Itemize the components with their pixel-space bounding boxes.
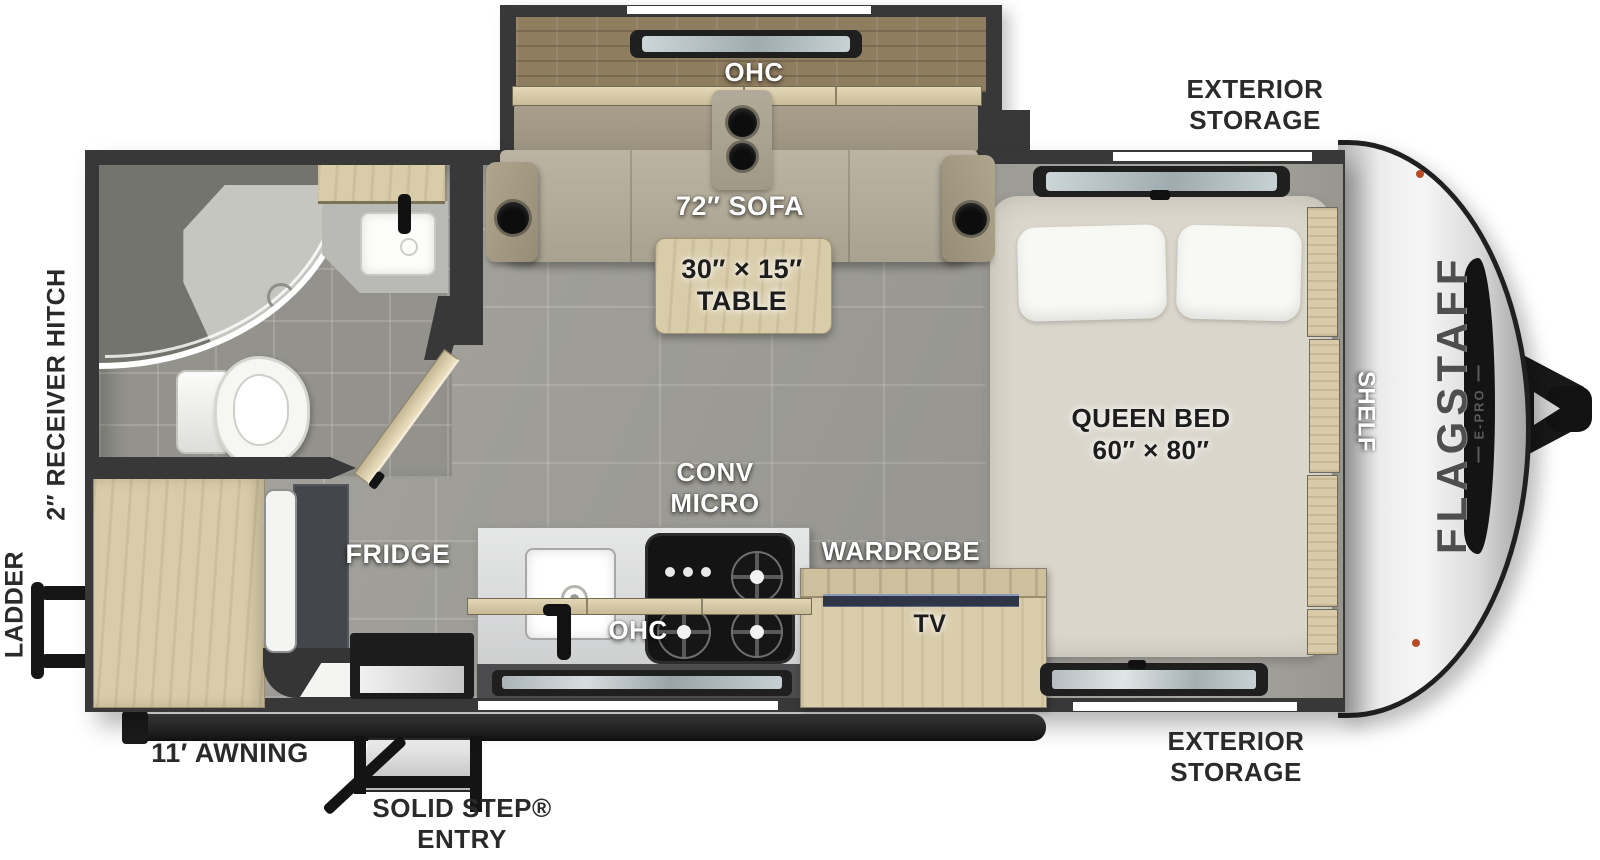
marker-light-bottom-icon [1412,639,1420,647]
cupholder-icon [728,108,757,137]
sofa-center-console [712,90,772,190]
cupholder-icon [729,143,756,170]
label-slide-ohc: OHC [704,57,804,88]
label-exterior-storage-bottom: EXTERIOR STORAGE [1136,726,1336,788]
window-latch-icon [1150,190,1170,200]
label-ladder: LADDER [0,545,31,665]
label-queen-bed: QUEEN BED 60″ × 80″ [1051,402,1251,466]
bedroom-window-doorside [1040,663,1268,696]
brand-trim: E-PRO [1472,386,1487,470]
label-fridge: FRIDGE [298,539,498,570]
kitchen-window [492,670,792,696]
pillow [1176,224,1302,321]
window-latch-icon [1128,660,1146,669]
brand-model: FLAGSTAFF [1428,274,1476,554]
entry-door-marker [478,701,778,710]
cooktop-knob-icon [683,567,693,577]
slide-storage-door-marker [627,6,871,14]
entry-step-well [350,633,474,699]
label-tv: TV [880,608,980,640]
label-wardrobe: WARDROBE [801,536,1001,567]
awning-rail [122,714,1046,741]
label-exterior-storage-top: EXTERIOR STORAGE [1155,74,1355,136]
pillow [1017,224,1167,322]
kitchen-overhead-cabinet [467,598,812,615]
shower-drain-icon [267,283,295,311]
bathroom-wall-bottom [85,457,330,479]
label-receiver-hitch: 2″ RECEIVER HITCH [42,245,73,545]
storage-door-marker-top [1113,152,1312,161]
cupholder-icon [497,202,529,234]
bed-shelf [1307,609,1338,655]
label-entry: SOLID STEP® ENTRY [342,793,582,855]
bed-shelf [1307,475,1338,607]
toilet-bowl [214,356,310,468]
cupholder-icon [955,203,987,235]
label-table: 30″ × 15″ TABLE [642,253,842,317]
floorplan-canvas: FLAGSTAFF E-PRO [0,0,1600,860]
bed-shelf [1307,207,1338,337]
kitchen-faucet-icon [543,604,571,616]
fridge-door [264,489,297,653]
bathroom-drain-icon [400,238,418,256]
cooktop-knob-icon [701,567,711,577]
label-conv-micro: CONV MICRO [615,457,815,519]
burner-icon [731,551,783,603]
brand-rule-left [1477,447,1479,463]
label-awning: 11′ AWNING [130,738,330,769]
label-kitchen-ohc: OHC [588,615,688,646]
slide-window [630,30,862,58]
label-shelf: SHELF [1351,342,1382,482]
marker-light-top-icon [1416,170,1424,178]
bed-shelf [1309,339,1340,473]
cooktop-knob-icon [665,567,675,577]
label-sofa: 72″ SOFA [640,191,840,222]
brand-rule-right [1477,365,1479,381]
storage-bunk [93,477,265,708]
tv-screen [823,594,1019,607]
bathroom-faucet-icon [398,194,411,234]
bathroom-cabinet [318,165,445,204]
storage-door-marker-bottom [1073,702,1297,711]
